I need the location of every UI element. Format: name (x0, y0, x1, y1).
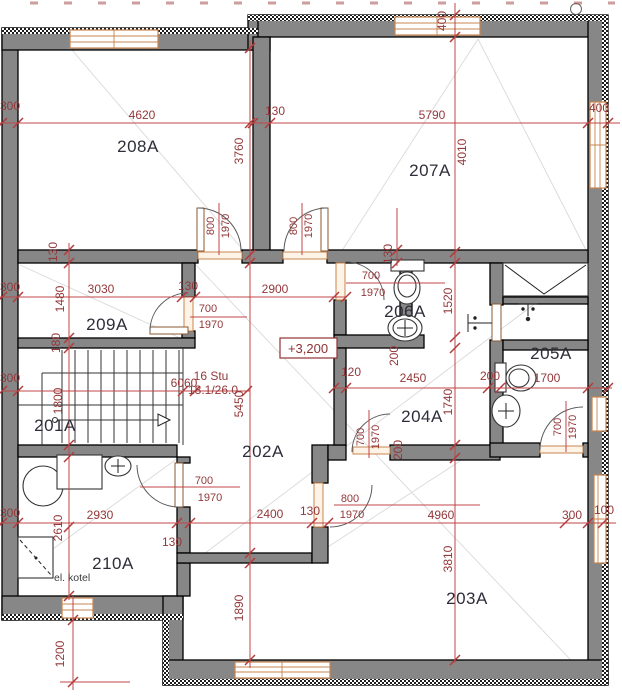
shower-head-icon-2 (519, 304, 537, 321)
door208-width: 800 (205, 217, 217, 235)
electric-boiler-icon (18, 537, 53, 578)
dim-130-center: 130 (381, 244, 395, 264)
window-bottom (235, 662, 330, 678)
room-label-210A: 210A (92, 554, 134, 573)
dim-4620: 4620 (129, 108, 156, 122)
door210-width: 700 (195, 475, 213, 487)
dim-100: 100 (594, 503, 614, 517)
room-label-201A: 201A (34, 416, 76, 435)
dim-2610: 2610 (51, 514, 65, 541)
room-label-206A: 206A (384, 302, 426, 321)
floor-plan: 4620 130 5790 300 400 400 3760 4010 300 … (0, 0, 622, 697)
dim-1800: 1800 (51, 387, 65, 414)
dim-2930: 2930 (87, 508, 114, 522)
door204-width: 700 (355, 428, 367, 446)
dim-4960: 4960 (428, 508, 455, 522)
door206-height: 1970 (361, 287, 385, 299)
dim-200-wall2: 200 (391, 440, 405, 460)
door205-height: 1970 (567, 415, 579, 439)
door205-width: 700 (552, 418, 564, 436)
room-label-203A: 203A (446, 589, 488, 608)
dim-1740: 1740 (441, 388, 455, 415)
dim-400-topwin: 400 (435, 11, 449, 31)
dim-130-203A: 130 (300, 504, 320, 518)
dim-1200: 1200 (53, 640, 67, 667)
dim-300-left1: 300 (0, 99, 20, 113)
stair-steps-note: 16 Stu (194, 369, 229, 383)
dim-2450: 2450 (400, 371, 427, 385)
dim-2900: 2900 (262, 282, 289, 296)
dim-300-left3: 300 (0, 371, 20, 385)
door207-height: 1970 (303, 214, 315, 238)
dim-3810: 3810 (441, 545, 455, 572)
room-label-205A: 205A (530, 344, 572, 363)
dim-3760: 3760 (232, 137, 246, 164)
door203-width: 800 (341, 493, 359, 505)
shower-head-icon (468, 314, 492, 332)
door207-width: 800 (288, 217, 300, 235)
room-label-208A: 208A (117, 137, 159, 156)
dim-1700: 1700 (534, 371, 561, 385)
stair-rise-run-note: 18.1/26.0 (188, 383, 238, 397)
fixtures (18, 260, 588, 578)
dim-3030: 3030 (88, 282, 115, 296)
room-label-202A: 202A (242, 442, 284, 461)
door209-height: 1970 (199, 319, 223, 331)
room-label-207A: 207A (409, 161, 451, 180)
dim-120: 120 (341, 365, 361, 379)
boiler-label: el. kotel (54, 572, 90, 584)
level-marker: +3,200 (280, 338, 337, 358)
dim-300-right: 300 (562, 508, 582, 522)
door-210A (137, 463, 183, 507)
dim-130-left: 130 (46, 242, 60, 262)
dim-1520: 1520 (441, 287, 455, 314)
dim-180: 180 (49, 333, 63, 353)
wardrobe-niche (503, 263, 588, 296)
counter-210A (57, 455, 102, 489)
window-top-left (70, 30, 158, 48)
dim-4010: 4010 (455, 138, 469, 165)
dim-200-205A: 200 (480, 369, 500, 383)
door206-width: 700 (362, 270, 380, 282)
dim-1480: 1480 (53, 285, 67, 312)
room-label-209A: 209A (86, 315, 128, 334)
toilet-206A-icon (391, 260, 424, 304)
door210-height: 1970 (198, 492, 222, 504)
dim-130-209A: 130 (178, 279, 198, 293)
sink-210A-icon (105, 456, 131, 476)
dim-5790: 5790 (419, 108, 446, 122)
door204-height: 1970 (370, 425, 382, 449)
dim-1890: 1890 (232, 594, 246, 621)
dim-300-left2: 300 (0, 280, 20, 294)
door203-height: 1970 (340, 509, 364, 521)
window-right-lower (594, 475, 606, 563)
dim-200-wall: 200 (387, 346, 401, 366)
door-209A (150, 293, 193, 334)
dim-130-210A: 130 (162, 535, 182, 549)
door208-height: 1970 (220, 214, 232, 238)
sink-205A-icon (492, 395, 520, 427)
dim-300-left4: 300 (0, 506, 20, 520)
dim-2400: 2400 (257, 507, 284, 521)
floor-plan-drawing: 4620 130 5790 300 400 400 3760 4010 300 … (0, 0, 622, 697)
grid-bubble (571, 4, 582, 15)
door209-width: 700 (199, 303, 217, 315)
level-marker-value: +3,200 (288, 341, 328, 356)
door-shower-room (492, 304, 501, 341)
window-right-small (592, 397, 606, 431)
dim-400-right: 400 (589, 101, 609, 115)
dim-5450: 5450 (232, 390, 246, 417)
dim-130-top: 130 (265, 104, 285, 118)
room-label-204A: 204A (401, 407, 443, 426)
